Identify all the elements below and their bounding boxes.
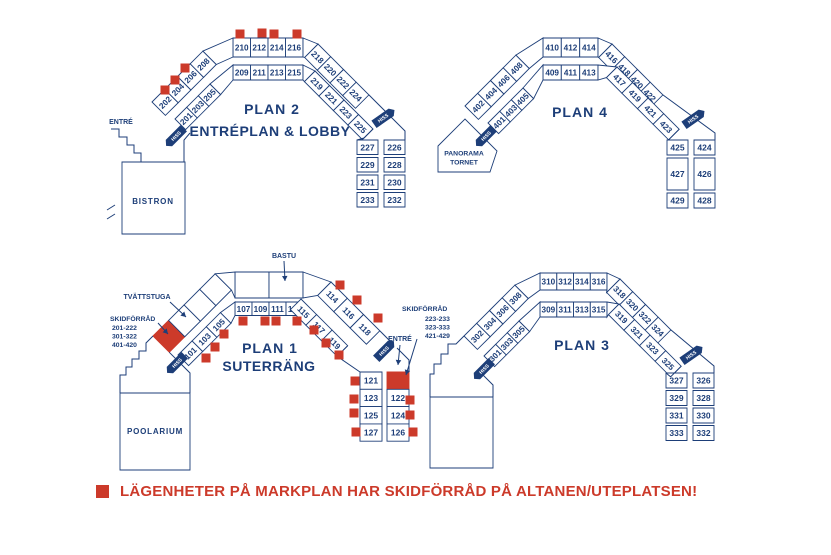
skidforrad-marker-square (322, 339, 331, 348)
door-tick (107, 205, 115, 210)
skidforrad-marker-square (220, 330, 229, 339)
leader-line (406, 339, 417, 375)
room-number: 231 (360, 177, 374, 187)
panorama-tornet-label: PANORAMA (444, 151, 484, 158)
room-number: 213 (270, 69, 284, 78)
room-number: 210 (235, 44, 249, 53)
room-number: 333 (669, 428, 683, 438)
skidforrad-right-range: 323-333 (425, 325, 450, 332)
skidforrad-marker-square (272, 317, 281, 326)
skidforrad-marker-square (270, 30, 279, 39)
room-number: 315 (592, 306, 606, 315)
entre-label: ENTRÉ (109, 117, 133, 126)
plan1-section: 1141161181011031051071091111131151171191… (110, 253, 450, 470)
skidforrad-marker-square (293, 317, 302, 326)
skidforrad-marker-square (171, 76, 180, 85)
skidforrad-marker-square (181, 64, 190, 73)
room-number: 214 (270, 44, 284, 53)
room-number: 216 (287, 44, 301, 53)
room-unlabeled (235, 272, 269, 298)
skidforrad-marker-square (335, 351, 344, 360)
room-number: 314 (575, 278, 589, 287)
skidforrad-marker-square (236, 30, 245, 39)
skidforrad-marker-square (336, 281, 345, 290)
skidforrad-left-range: 301-322 (112, 334, 137, 341)
skidforrad-left-range: 201-222 (112, 325, 137, 332)
room-number: 411 (564, 69, 578, 78)
plan2-section: 2022042062082102122142162182202222242012… (107, 29, 405, 235)
arrow-head (396, 360, 402, 365)
skidforrad-marker-square (239, 317, 248, 326)
room-number: 424 (697, 143, 711, 153)
room-number: 127 (364, 428, 378, 438)
skidforrad-right-label: SKIDFÖRRÅD (402, 304, 447, 313)
hiss-elevator-marker: HISS (163, 125, 187, 149)
plan3-section: 3023043063083103123143163183203223243013… (430, 273, 714, 468)
skidforrad-marker-square (293, 30, 302, 39)
skidforrad-marker-square (353, 296, 362, 305)
room-number: 410 (545, 44, 559, 53)
skidforrad-marker-square (202, 354, 211, 363)
skidforrad-marker-square (350, 395, 359, 404)
room-number: 212 (252, 44, 266, 53)
room-number: 123 (364, 393, 378, 403)
floor-plan-canvas: 2022042062082102122142162182202222242012… (0, 0, 831, 555)
hiss-elevator-marker: HISS (681, 107, 707, 129)
room-number: 409 (545, 69, 559, 78)
poolarium-label: POOLARIUM (127, 427, 183, 436)
skidforrad-left-label: SKIDFÖRRÅD (110, 314, 155, 323)
room-number: 313 (575, 306, 589, 315)
room-number: 215 (287, 69, 301, 78)
plan2-subtitle: ENTRÉPLAN & LOBBY (190, 123, 351, 139)
plan1-subtitle: SUTERRÄNG (222, 358, 315, 374)
bastu-label: BASTU (272, 253, 296, 260)
room-number: 125 (364, 410, 378, 420)
room-number: 413 (582, 69, 596, 78)
plan4-section: 4024044064084104124144164184204224014034… (438, 38, 715, 208)
room-number: 121 (364, 376, 378, 386)
room-number: 311 (559, 306, 573, 315)
room-number: 427 (670, 169, 684, 179)
room-number: 122 (391, 393, 405, 403)
room-number: 228 (387, 160, 401, 170)
bistron-label: BISTRON (132, 197, 174, 206)
room-number: 428 (697, 196, 711, 206)
room-number: 211 (253, 69, 267, 78)
entrance-steps-outline (430, 336, 464, 397)
room-number: 111 (271, 305, 284, 314)
skidforrad-marker-square (258, 29, 267, 38)
room-number: 330 (696, 411, 710, 421)
skidforrad-marker-square (374, 314, 383, 323)
room-number: 309 (542, 306, 556, 315)
room-number: 412 (564, 44, 578, 53)
skidforrad-left-range: 401-420 (112, 342, 137, 349)
panorama-tornet-label: TORNET (450, 160, 479, 167)
skidforrad-marker-square (161, 86, 170, 95)
room-number: 426 (697, 169, 711, 179)
skidforrad-marker-square (406, 396, 415, 405)
skidforrad-marker-square (351, 377, 360, 386)
skidforrad-marker-square (261, 317, 270, 326)
hiss-elevator-marker: HISS (164, 352, 188, 376)
room-number: 425 (670, 143, 684, 153)
room-number: 107 (237, 305, 251, 314)
hiss-elevator-marker: HISS (373, 338, 397, 362)
room-number: 310 (542, 278, 556, 287)
plan2-title: PLAN 2 (244, 101, 300, 117)
skidforrad-marker-square (350, 409, 359, 418)
hiss-elevator-marker: HISS (471, 358, 495, 382)
plan1-title: PLAN 1 (242, 340, 298, 356)
room-number: 126 (391, 428, 405, 438)
skidforrad-right-range: 421-429 (425, 333, 450, 340)
room-number: 232 (387, 195, 401, 205)
hiss-elevator-marker: HISS (679, 343, 705, 365)
room-number: 233 (360, 195, 374, 205)
room-number: 209 (235, 69, 249, 78)
skidforrad-legend-square (96, 485, 109, 498)
room-number: 230 (387, 177, 401, 187)
room-number: 331 (669, 411, 683, 421)
room-number: 429 (670, 196, 684, 206)
door-tick (107, 214, 115, 219)
room-number: 312 (558, 278, 572, 287)
room-number: 326 (696, 376, 710, 386)
skidforrad-right-range: 223-233 (425, 316, 450, 323)
skidforrad-marker-square (409, 428, 418, 437)
room-number: 226 (387, 142, 401, 152)
resort-floor-plan-map: 2022042062082102122142162182202222242012… (0, 0, 831, 555)
room-number: 109 (254, 305, 268, 314)
room-number: 414 (582, 44, 596, 53)
wall-outline (481, 373, 493, 397)
legend-text: LÄGENHETER PÅ MARKPLAN HAR SKIDFÖRRÅD PÅ… (120, 483, 697, 500)
room-number: 328 (696, 393, 710, 403)
room-number: 229 (360, 160, 374, 170)
room-number: 329 (669, 393, 683, 403)
skidforrad-marker-square (406, 411, 415, 420)
skidforrad-marker-square (211, 343, 220, 352)
plan4-title: PLAN 4 (552, 104, 608, 120)
room-number: 332 (696, 428, 710, 438)
room-unlabeled (269, 272, 303, 298)
room-number: 227 (360, 142, 374, 152)
room-number: 327 (669, 376, 683, 386)
legend: LÄGENHETER PÅ MARKPLAN HAR SKIDFÖRRÅD PÅ… (96, 483, 697, 500)
skidforrad-marker-square (310, 326, 319, 335)
room-number: 316 (592, 278, 606, 287)
plan3-title: PLAN 3 (554, 337, 610, 353)
tvattstuga-label: TVÄTTSTUGA (123, 293, 170, 301)
skidforrad-marker-square (352, 428, 361, 437)
entrance-steps-outline (111, 129, 141, 162)
facility-room-unlabeled (430, 397, 493, 468)
room-number: 124 (391, 410, 405, 420)
